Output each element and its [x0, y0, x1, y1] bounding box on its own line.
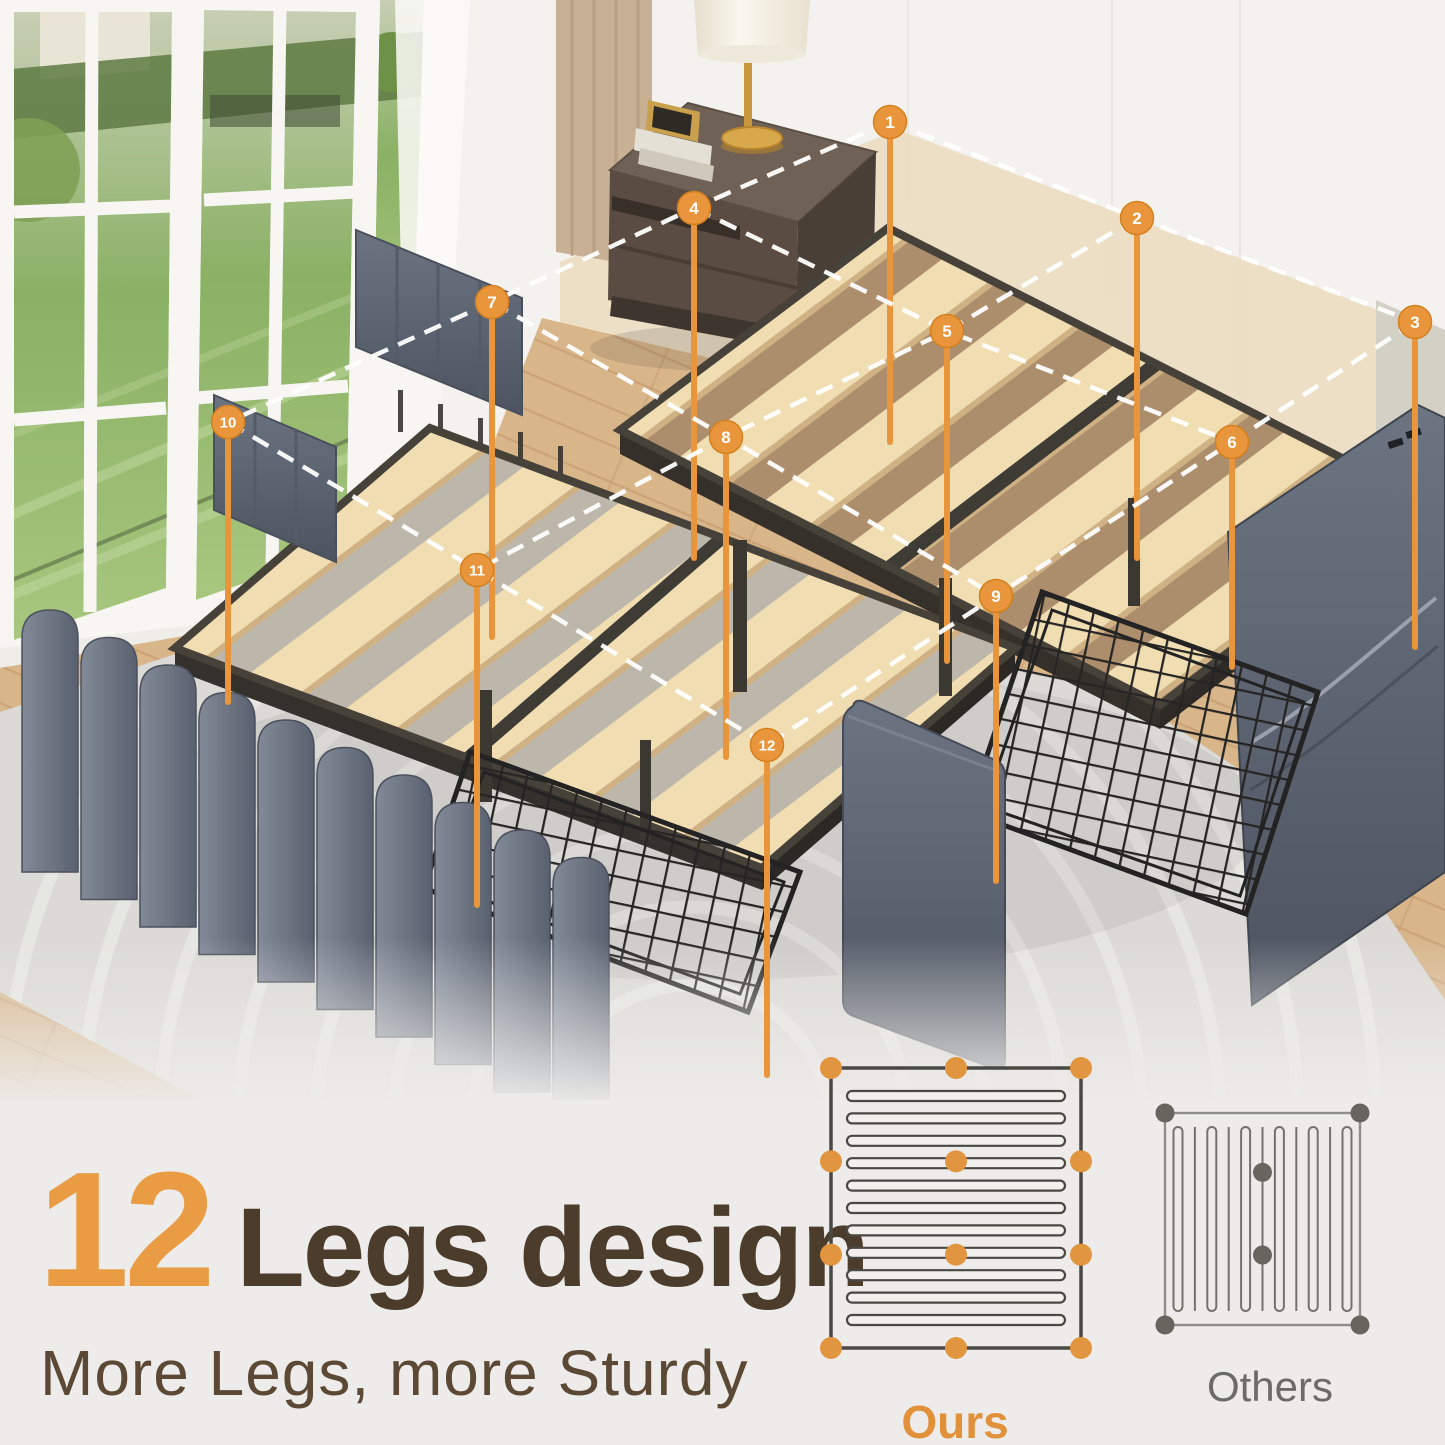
headline: 12 Legs design	[38, 1148, 868, 1312]
ours-leg-dot	[820, 1244, 842, 1266]
others-label: Others	[1140, 1363, 1400, 1411]
others-leg-dot	[1156, 1104, 1175, 1123]
ours-leg-diagram	[795, 1048, 1115, 1394]
ours-leg-dot	[1070, 1057, 1092, 1079]
others-slat	[1343, 1127, 1352, 1311]
ours-leg-dot	[945, 1244, 967, 1266]
ours-leg-dot	[945, 1150, 967, 1172]
others-slat	[1241, 1127, 1250, 1311]
others-leg-diagram	[1140, 1088, 1400, 1356]
others-slat	[1207, 1127, 1216, 1311]
ours-slat	[847, 1293, 1065, 1303]
ours-leg-dot	[1070, 1337, 1092, 1359]
ours-schematic: Ours	[795, 1048, 1115, 1445]
others-leg-dot	[1351, 1104, 1370, 1123]
ours-slat	[847, 1136, 1065, 1146]
lamp-base	[722, 127, 782, 149]
others-leg-dot	[1253, 1163, 1272, 1182]
others-schematic: Others	[1140, 1088, 1400, 1411]
others-slat	[1174, 1127, 1183, 1311]
ours-slat	[847, 1113, 1065, 1123]
headline-subtitle: More Legs, more Sturdy	[40, 1336, 749, 1410]
ours-leg-dot	[945, 1057, 967, 1079]
headline-number: 12	[38, 1148, 210, 1312]
others-leg-dot	[1253, 1246, 1272, 1265]
ours-slat	[847, 1091, 1065, 1101]
ours-slat	[847, 1225, 1065, 1235]
ours-leg-dot	[1070, 1244, 1092, 1266]
headline-title: Legs design	[236, 1192, 867, 1304]
ours-label: Ours	[795, 1395, 1115, 1445]
others-slat	[1275, 1127, 1284, 1311]
ours-slat	[847, 1203, 1065, 1213]
ours-leg-dot	[945, 1337, 967, 1359]
product-infographic: 123456789101112 12 Legs design More Legs…	[0, 0, 1445, 1445]
ours-slat	[847, 1181, 1065, 1191]
ours-leg-dot	[1070, 1150, 1092, 1172]
background-fade	[0, 938, 1445, 1108]
others-leg-dot	[1156, 1316, 1175, 1335]
ours-leg-dot	[820, 1057, 842, 1079]
ours-leg-dot	[820, 1150, 842, 1172]
others-leg-dot	[1351, 1316, 1370, 1335]
ours-slat	[847, 1270, 1065, 1280]
others-slat	[1309, 1127, 1318, 1311]
ours-slat	[847, 1315, 1065, 1325]
ours-leg-dot	[820, 1337, 842, 1359]
